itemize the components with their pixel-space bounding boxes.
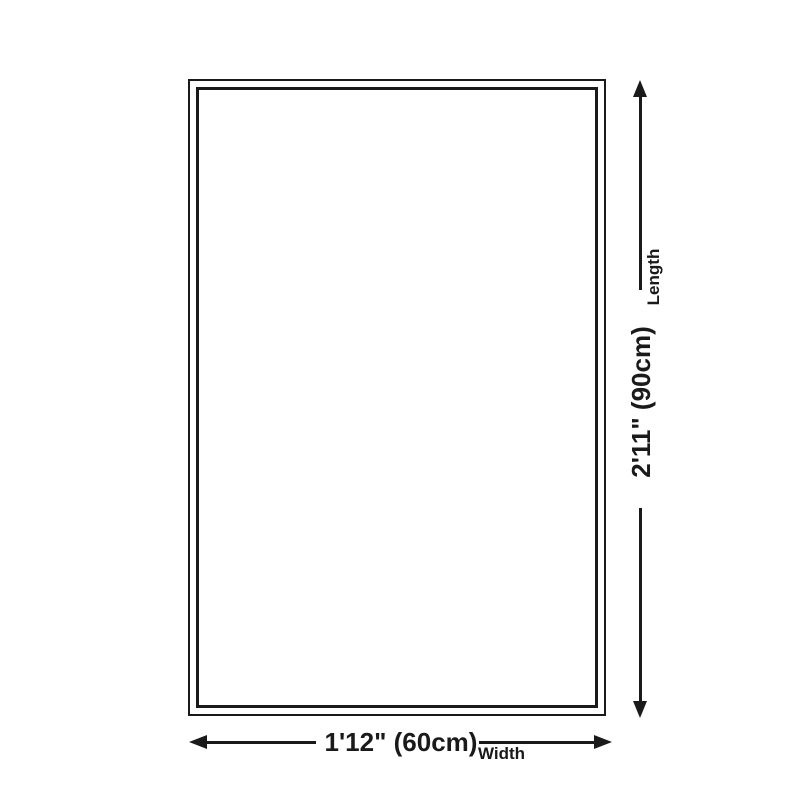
- rug-outline-inner-border: [196, 87, 598, 708]
- length-dimension-value: 2'11" (90cm): [626, 312, 656, 492]
- arrow-right-icon: [594, 735, 612, 749]
- length-axis-label: Length: [645, 242, 663, 312]
- width-arrow-line-right: [479, 741, 596, 744]
- width-axis-label: Width: [478, 745, 524, 763]
- length-arrow-line-lower: [639, 508, 642, 702]
- rug-outline: [188, 79, 606, 716]
- width-arrow-line-left: [204, 741, 316, 744]
- arrow-down-icon: [633, 701, 647, 718]
- length-arrow-line-upper: [639, 94, 642, 290]
- rug-size-diagram: Length 2'11" (90cm) 1'12" (60cm) Width: [0, 0, 800, 800]
- width-dimension-value: 1'12" (60cm): [320, 727, 482, 757]
